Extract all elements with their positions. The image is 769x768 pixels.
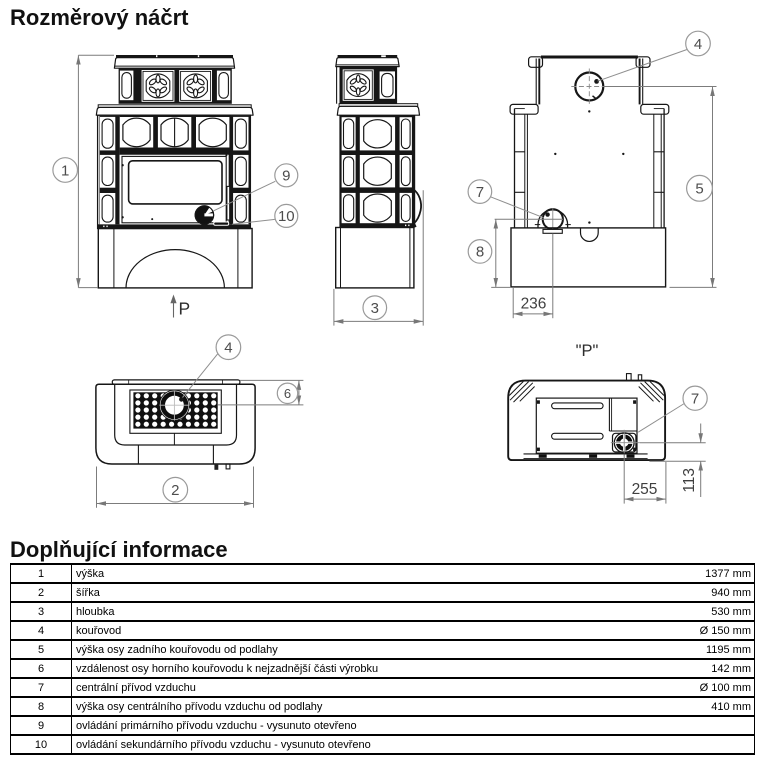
svg-text:255: 255 [632, 481, 658, 498]
svg-text:113: 113 [681, 468, 698, 493]
svg-text:9: 9 [282, 168, 290, 185]
svg-text:6: 6 [284, 386, 291, 401]
svg-text:236: 236 [521, 296, 547, 313]
svg-text:4: 4 [694, 36, 702, 53]
svg-text:7: 7 [476, 184, 484, 201]
svg-text:10: 10 [278, 208, 295, 225]
svg-text:3: 3 [371, 300, 379, 317]
svg-text:1: 1 [61, 162, 69, 179]
svg-text:5: 5 [695, 181, 703, 198]
svg-text:P: P [179, 299, 191, 319]
svg-text:"P": "P" [576, 342, 599, 360]
svg-text:2: 2 [171, 482, 179, 499]
svg-text:4: 4 [224, 340, 232, 357]
svg-text:8: 8 [476, 244, 484, 261]
svg-text:7: 7 [691, 391, 699, 408]
